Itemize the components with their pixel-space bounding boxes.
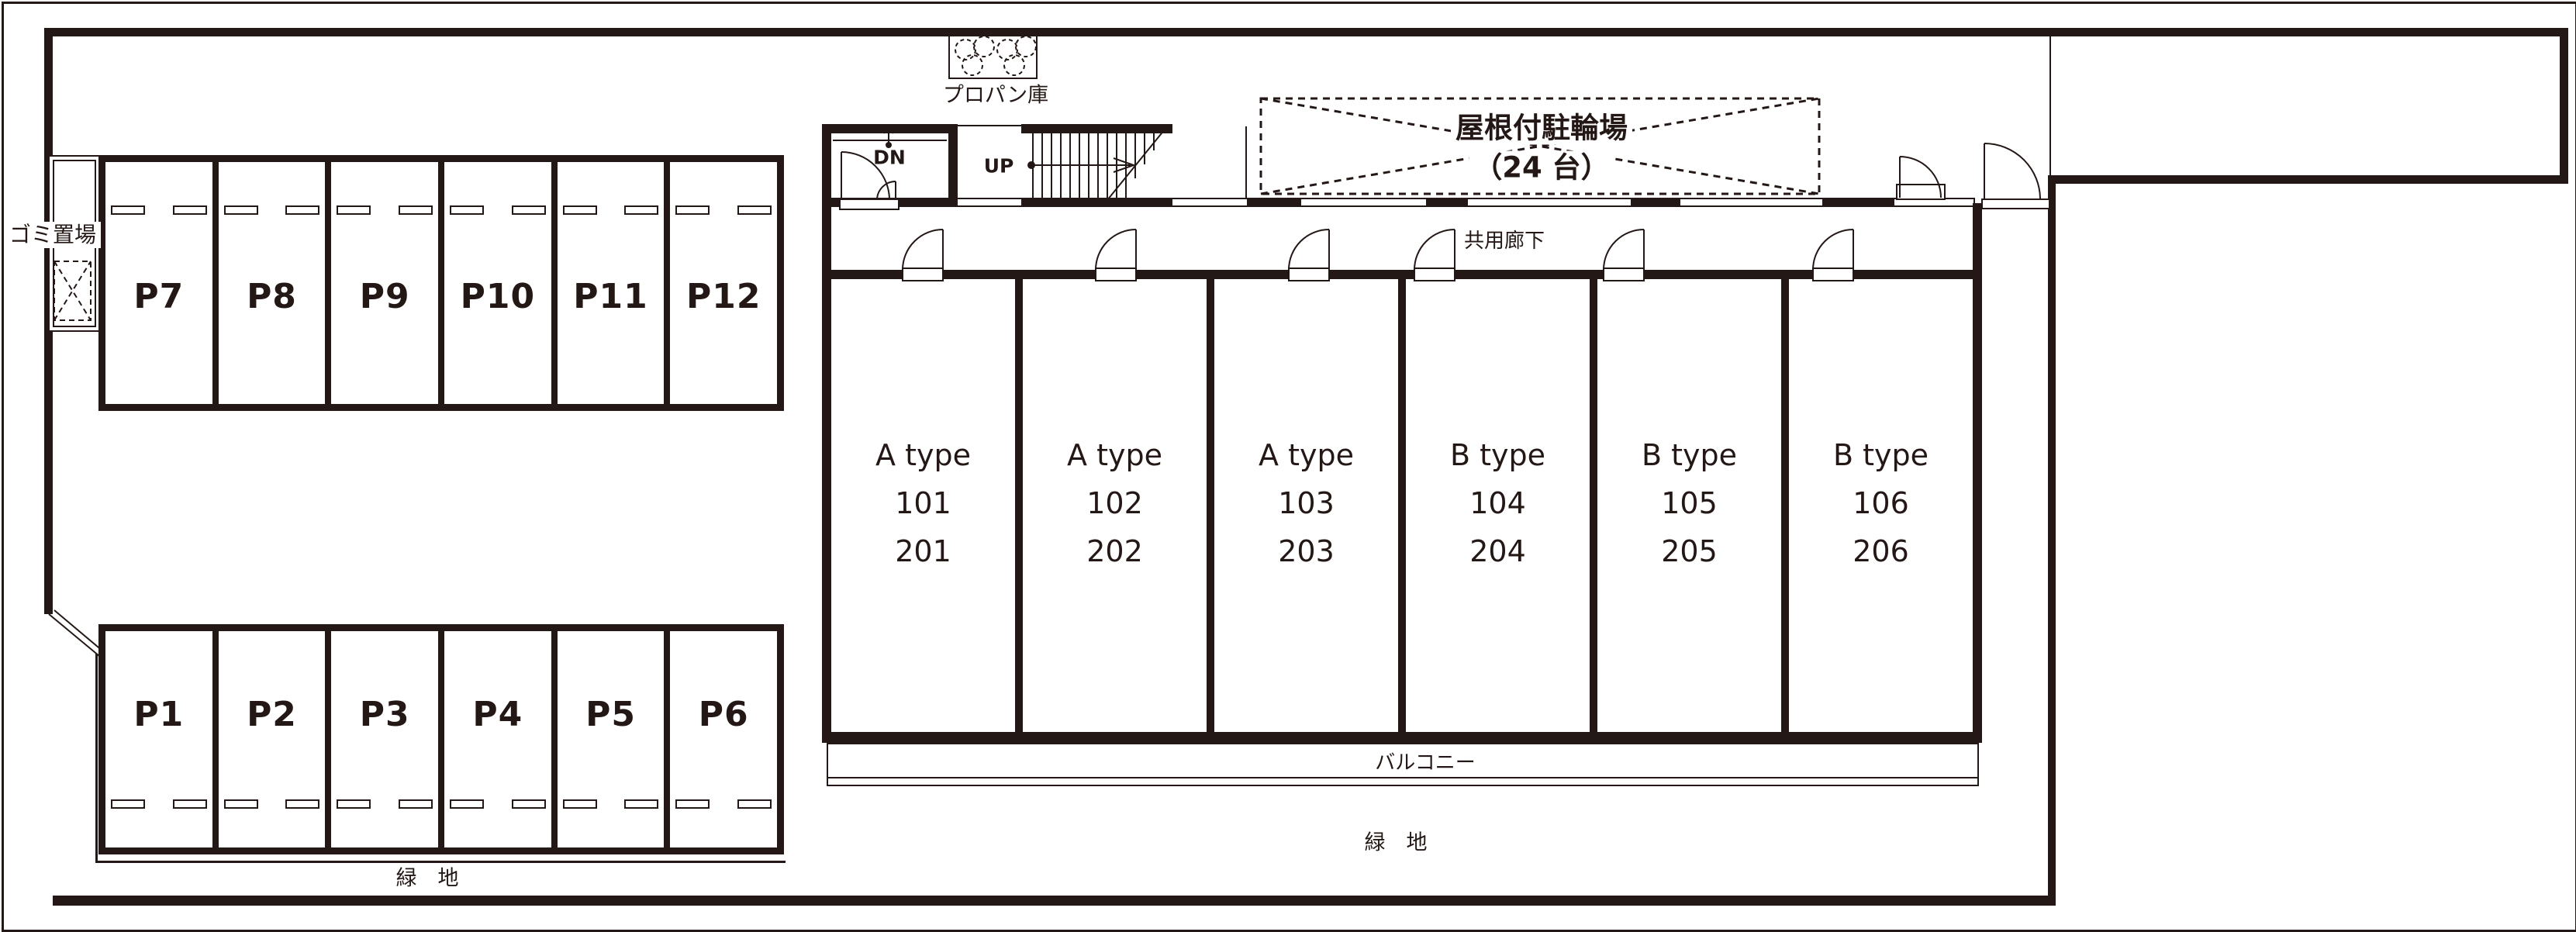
green-area-label-left: 緑 地 — [396, 868, 459, 889]
propane-storage-label: プロパン庫 — [943, 85, 1048, 106]
garbage-dashed-box — [54, 261, 91, 320]
balcony-label: バルコニー — [1375, 753, 1475, 773]
green-area-label-right: 緑 地 — [1365, 833, 1428, 854]
plan-linework-overlay — [0, 0, 2576, 932]
stairs-up-label: UP — [984, 157, 1014, 176]
floor-plan-page: { "colors": {"ink": "#231815", "paper": … — [0, 0, 2576, 932]
propane-cylinders — [955, 36, 1036, 75]
up-staircase — [1027, 126, 1168, 200]
garbage-area-label: ゴミ置場 — [5, 222, 101, 248]
bicycle-capacity-label: （24 台） — [1469, 151, 1614, 185]
east-entrance-doors — [1897, 143, 2049, 209]
curb-chamfer — [49, 610, 103, 656]
common-corridor-label: 共用廊下 — [1464, 231, 1545, 251]
stairs-down-label: DN — [873, 148, 906, 167]
bicycle-parking-label: 屋根付駐輪場 — [1451, 112, 1632, 145]
unit-entry-doors — [903, 230, 1853, 281]
